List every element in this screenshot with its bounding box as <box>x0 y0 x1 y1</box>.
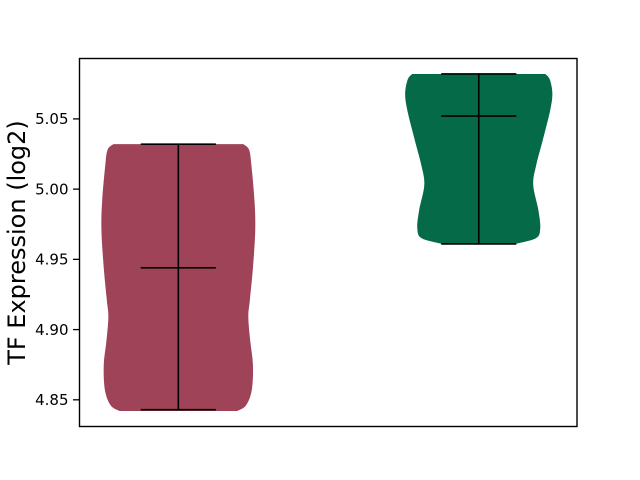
y-tick-label: 5.00 <box>35 180 68 198</box>
violin-chart-canvas: TF Expression (log2) 4.854.904.955.005.0… <box>0 0 640 480</box>
violins <box>101 74 552 411</box>
y-tick-label: 4.90 <box>35 321 68 339</box>
violin-plot-figure: TF Expression (log2) 4.854.904.955.005.0… <box>0 0 640 480</box>
y-axis-label: TF Expression (log2) <box>3 120 31 366</box>
y-tick-label: 4.95 <box>35 251 68 269</box>
y-tick-label: 5.05 <box>35 110 68 128</box>
violin-right <box>405 74 552 244</box>
violin-left <box>101 144 255 411</box>
y-axis-ticks: 4.854.904.955.005.05 <box>35 110 79 409</box>
y-tick-label: 4.85 <box>35 391 68 409</box>
